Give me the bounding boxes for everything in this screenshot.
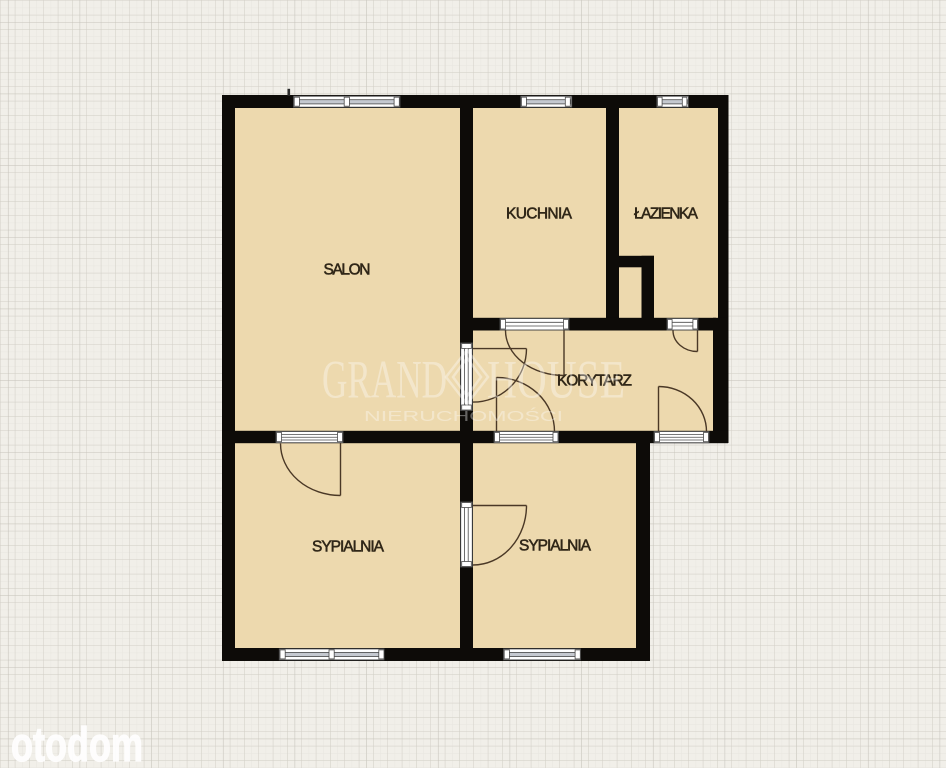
svg-text:GRAND: GRAND [322, 350, 447, 410]
svg-text:SALON: SALON [324, 262, 371, 279]
svg-text:ŁAZIENKA: ŁAZIENKA [634, 206, 699, 223]
svg-text:otodom: otodom [11, 719, 143, 768]
svg-text:NIERUCHOMOŚCI: NIERUCHOMOŚCI [364, 407, 563, 425]
svg-text:SYPIALNIA: SYPIALNIA [519, 538, 592, 555]
svg-text:HOUSE: HOUSE [487, 350, 625, 410]
svg-text:KUCHNIA: KUCHNIA [506, 206, 573, 223]
svg-text:SYPIALNIA: SYPIALNIA [312, 539, 385, 556]
